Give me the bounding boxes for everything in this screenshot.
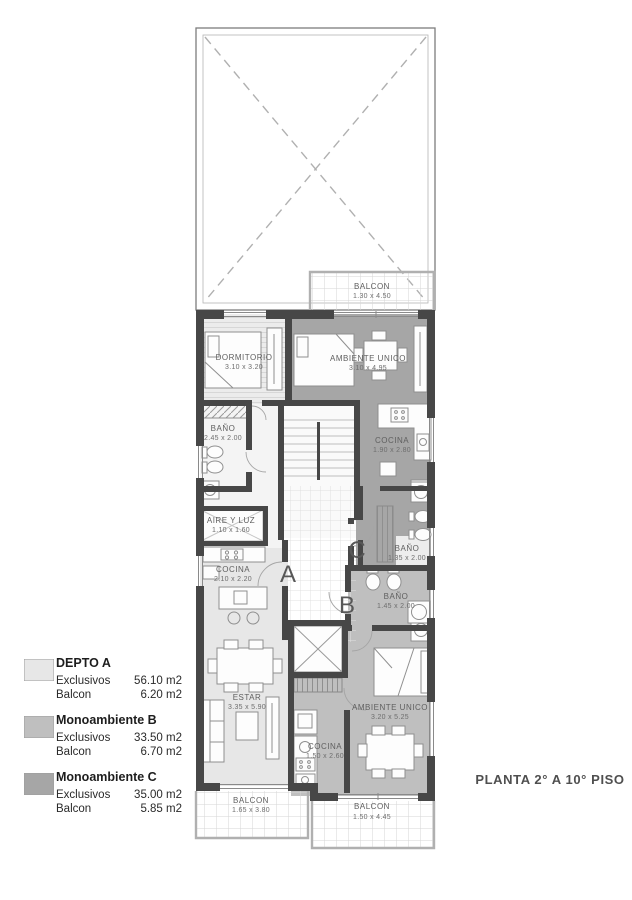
legend-row-value: 6.70 m2	[140, 745, 182, 759]
ambiente-b-table-chairs	[358, 726, 423, 778]
elevator	[294, 626, 342, 672]
legend-row-label: Balcon	[56, 745, 91, 759]
legend-row-value: 33.50 m2	[134, 731, 182, 745]
plan-title: PLANTA 2° A 10° PISO	[468, 772, 632, 787]
estar-dining-table	[208, 640, 282, 692]
ambiente-c-shelf	[414, 326, 427, 392]
legend-item-monoambiente-b: Monoambiente B Exclusivos 33.50 m2 Balco…	[24, 713, 188, 759]
legend-name-b: Monoambiente B	[56, 713, 188, 728]
estar-label: ESTAR	[233, 693, 262, 702]
legend-item-depto-a: DEPTO A Exclusivos 56.10 m2 Balcon 6.20 …	[24, 656, 188, 702]
balcony-top	[310, 272, 434, 310]
legend-row-label: Exclusivos	[56, 674, 110, 688]
stairs-strip-c	[377, 506, 393, 562]
aire-y-luz-dims: 1.10 x 1.60	[212, 527, 250, 534]
balcon-top-dims: 1.30 x 4.50	[353, 293, 391, 300]
estar-coffee-table	[236, 712, 258, 740]
cocina-b-dims: 1.50 x 2.60	[306, 753, 344, 760]
balcon-br-label: BALCON	[354, 802, 390, 811]
unit-marker-c: C	[348, 537, 365, 564]
legend-name-a: DEPTO A	[56, 656, 188, 671]
legend-row-label: Exclusivos	[56, 731, 110, 745]
void-patio	[196, 28, 435, 310]
cocina-c-dims: 1.90 x 2.80	[373, 447, 411, 454]
legend: DEPTO A Exclusivos 56.10 m2 Balcon 6.20 …	[24, 656, 188, 827]
unit-marker-a: A	[280, 561, 296, 588]
ambiente-c-dims: 3.10 x 4.95	[349, 365, 387, 372]
balcon-top-label: BALCON	[354, 282, 390, 291]
ambiente-b-label: AMBIENTE UNICO	[352, 703, 428, 712]
legend-row-value: 5.85 m2	[140, 802, 182, 816]
bano-a-label: BAÑO	[211, 424, 236, 433]
balcon-br-dims: 1.50 x 4.45	[353, 814, 391, 821]
legend-row-value: 56.10 m2	[134, 674, 182, 688]
bano-b-dims: 1.45 x 2.00	[377, 603, 415, 610]
legend-swatch-c	[24, 773, 54, 795]
estar-sofa	[202, 700, 224, 762]
ambiente-b-dims: 3.20 x 5.25	[371, 714, 409, 721]
ambiente-b-bed	[374, 648, 431, 696]
estar-tv-unit	[266, 697, 279, 759]
ambiente-c-label: AMBIENTE UNICO	[330, 354, 406, 363]
legend-name-c: Monoambiente C	[56, 770, 188, 785]
legend-row-label: Balcon	[56, 802, 91, 816]
cocina-c-label: COCINA	[375, 436, 409, 445]
legend-swatch-a	[24, 659, 54, 681]
legend-row: Exclusivos 33.50 m2	[56, 731, 182, 745]
legend-row-label: Exclusivos	[56, 788, 110, 802]
estar-dims: 3.35 x 5.90	[228, 704, 266, 711]
aire-y-luz-label: AIRE Y LUZ	[207, 516, 255, 525]
legend-row-value: 6.20 m2	[140, 688, 182, 702]
legend-item-monoambiente-c: Monoambiente C Exclusivos 35.00 m2 Balco…	[24, 770, 188, 816]
bano-a-dims: 2.45 x 2.00	[204, 435, 242, 442]
legend-row: Balcon 6.20 m2	[56, 688, 182, 702]
dormitorio-dims: 3.10 x 3.20	[225, 364, 263, 371]
legend-swatch-b	[24, 716, 54, 738]
balcon-bl-label: BALCON	[233, 796, 269, 805]
legend-row-value: 35.00 m2	[134, 788, 182, 802]
dormitorio-label: DORMITORIO	[216, 353, 273, 362]
cocina-a-dims: 2.10 x 2.20	[214, 576, 252, 583]
unit-marker-b: B	[339, 592, 355, 619]
legend-row: Exclusivos 35.00 m2	[56, 788, 182, 802]
legend-row: Exclusivos 56.10 m2	[56, 674, 182, 688]
legend-row: Balcon 5.85 m2	[56, 802, 182, 816]
bano-c-dims: 1.35 x 2.00	[388, 555, 426, 562]
floor-plan-page: BALCON 1.30 x 4.50 DORMITORIO 3.10 x 3.2…	[0, 0, 632, 900]
bano-c-label: BAÑO	[395, 544, 420, 553]
cocina-a-label: COCINA	[216, 565, 250, 574]
bano-b-label: BAÑO	[384, 592, 409, 601]
legend-row-label: Balcon	[56, 688, 91, 702]
cocina-b-label: COCINA	[308, 742, 342, 751]
aire-y-luz-shaft	[201, 510, 263, 541]
legend-row: Balcon 6.70 m2	[56, 745, 182, 759]
balcon-bl-dims: 1.65 x 3.80	[232, 807, 270, 814]
shaft-hatch	[294, 678, 342, 692]
